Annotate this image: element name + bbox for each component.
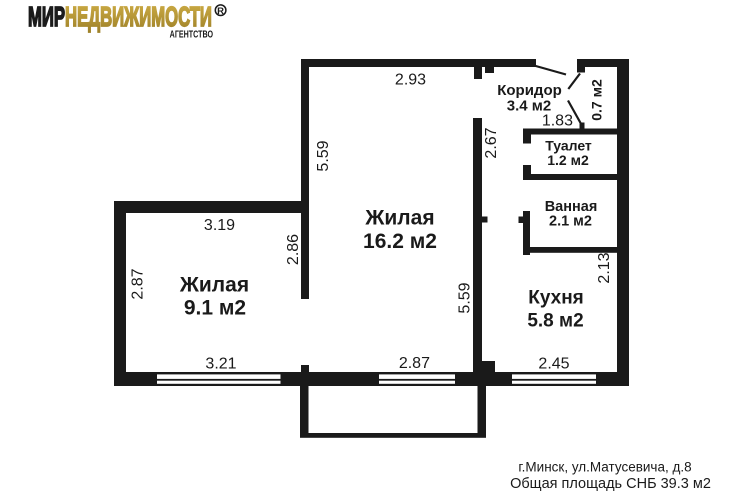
svg-text:1.2 м2: 1.2 м2 bbox=[547, 152, 589, 168]
svg-text:2.45: 2.45 bbox=[538, 356, 569, 373]
svg-text:3.19: 3.19 bbox=[204, 217, 235, 234]
svg-text:3.21: 3.21 bbox=[205, 356, 236, 373]
svg-text:2.93: 2.93 bbox=[395, 72, 426, 89]
svg-text:2.1 м2: 2.1 м2 bbox=[549, 214, 592, 230]
svg-text:2.67: 2.67 bbox=[483, 127, 500, 158]
svg-text:5.59: 5.59 bbox=[315, 140, 332, 171]
svg-text:2.87: 2.87 bbox=[399, 355, 430, 372]
svg-text:АГЕНТСТВО: АГЕНТСТВО bbox=[170, 28, 213, 40]
svg-text:R: R bbox=[217, 6, 224, 17]
svg-text:9.1 м2: 9.1 м2 bbox=[184, 297, 246, 320]
svg-text:2.87: 2.87 bbox=[130, 268, 147, 299]
svg-text:16.2 м2: 16.2 м2 bbox=[363, 230, 437, 253]
svg-text:Коридор: Коридор bbox=[497, 82, 562, 99]
svg-text:2.13: 2.13 bbox=[596, 252, 613, 283]
svg-text:Общая площадь СНБ 39.3 м2: Общая площадь СНБ 39.3 м2 bbox=[510, 476, 711, 492]
svg-text:5.59: 5.59 bbox=[457, 282, 474, 313]
svg-text:Жилая: Жилая bbox=[364, 207, 434, 230]
svg-text:2.86: 2.86 bbox=[285, 234, 302, 265]
svg-text:Ванная: Ванная bbox=[545, 199, 598, 215]
svg-text:5.8 м2: 5.8 м2 bbox=[527, 311, 583, 332]
svg-text:0.7 м2: 0.7 м2 bbox=[589, 79, 605, 121]
svg-text:Жилая: Жилая bbox=[179, 274, 249, 297]
svg-text:г.Минск, ул.Матусевича, д.8: г.Минск, ул.Матусевича, д.8 bbox=[518, 460, 691, 475]
svg-text:Кухня: Кухня bbox=[528, 288, 584, 309]
svg-text:1.83: 1.83 bbox=[542, 113, 573, 130]
